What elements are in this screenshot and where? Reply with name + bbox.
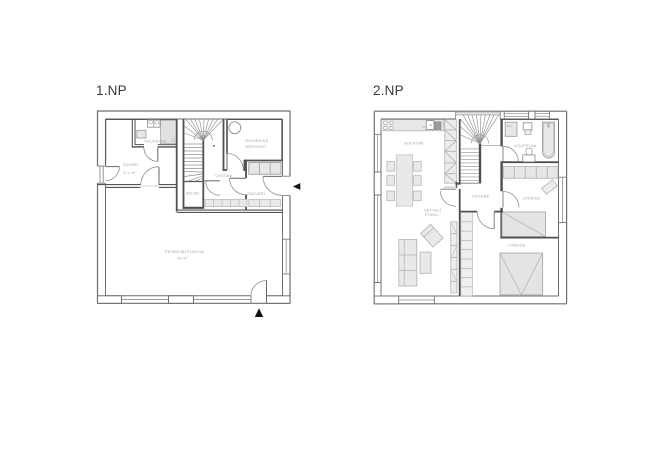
svg-text:ZÁZEMÍ: ZÁZEMÍ: [123, 163, 139, 167]
svg-text:5.1 m²: 5.1 m²: [124, 171, 136, 175]
svg-text:P+L: P+L: [507, 124, 513, 128]
svg-text:SKLAD: SKLAD: [186, 192, 199, 196]
svg-text:MÍSTNOST: MÍSTNOST: [245, 145, 267, 149]
svg-text:1.NP: 1.NP: [96, 83, 127, 98]
svg-text:POKOJ: POKOJ: [425, 213, 439, 217]
svg-text:ZÁDVEŘÍ: ZÁDVEŘÍ: [247, 191, 265, 196]
svg-text:KOUPELNA: KOUPELNA: [144, 139, 166, 143]
svg-text:OBÝVACÍ: OBÝVACÍ: [424, 209, 443, 213]
svg-text:CHODBA: CHODBA: [472, 195, 490, 199]
svg-text:KUCHYNĚ: KUCHYNĚ: [404, 140, 424, 145]
svg-text:CHODBA: CHODBA: [215, 174, 233, 178]
svg-text:LOŽNICE: LOŽNICE: [508, 242, 526, 247]
svg-text:LOŽNICE: LOŽNICE: [523, 195, 541, 200]
svg-text:PRODEJNÍ PLOCHA: PRODEJNÍ PLOCHA: [165, 250, 204, 254]
svg-text:FI: FI: [422, 125, 425, 129]
svg-text:KOUPELNA: KOUPELNA: [514, 144, 536, 148]
svg-text:49 m²: 49 m²: [177, 257, 188, 261]
svg-text:2.NP: 2.NP: [373, 83, 404, 98]
svg-text:TECHNICKÁ: TECHNICKÁ: [245, 139, 269, 143]
